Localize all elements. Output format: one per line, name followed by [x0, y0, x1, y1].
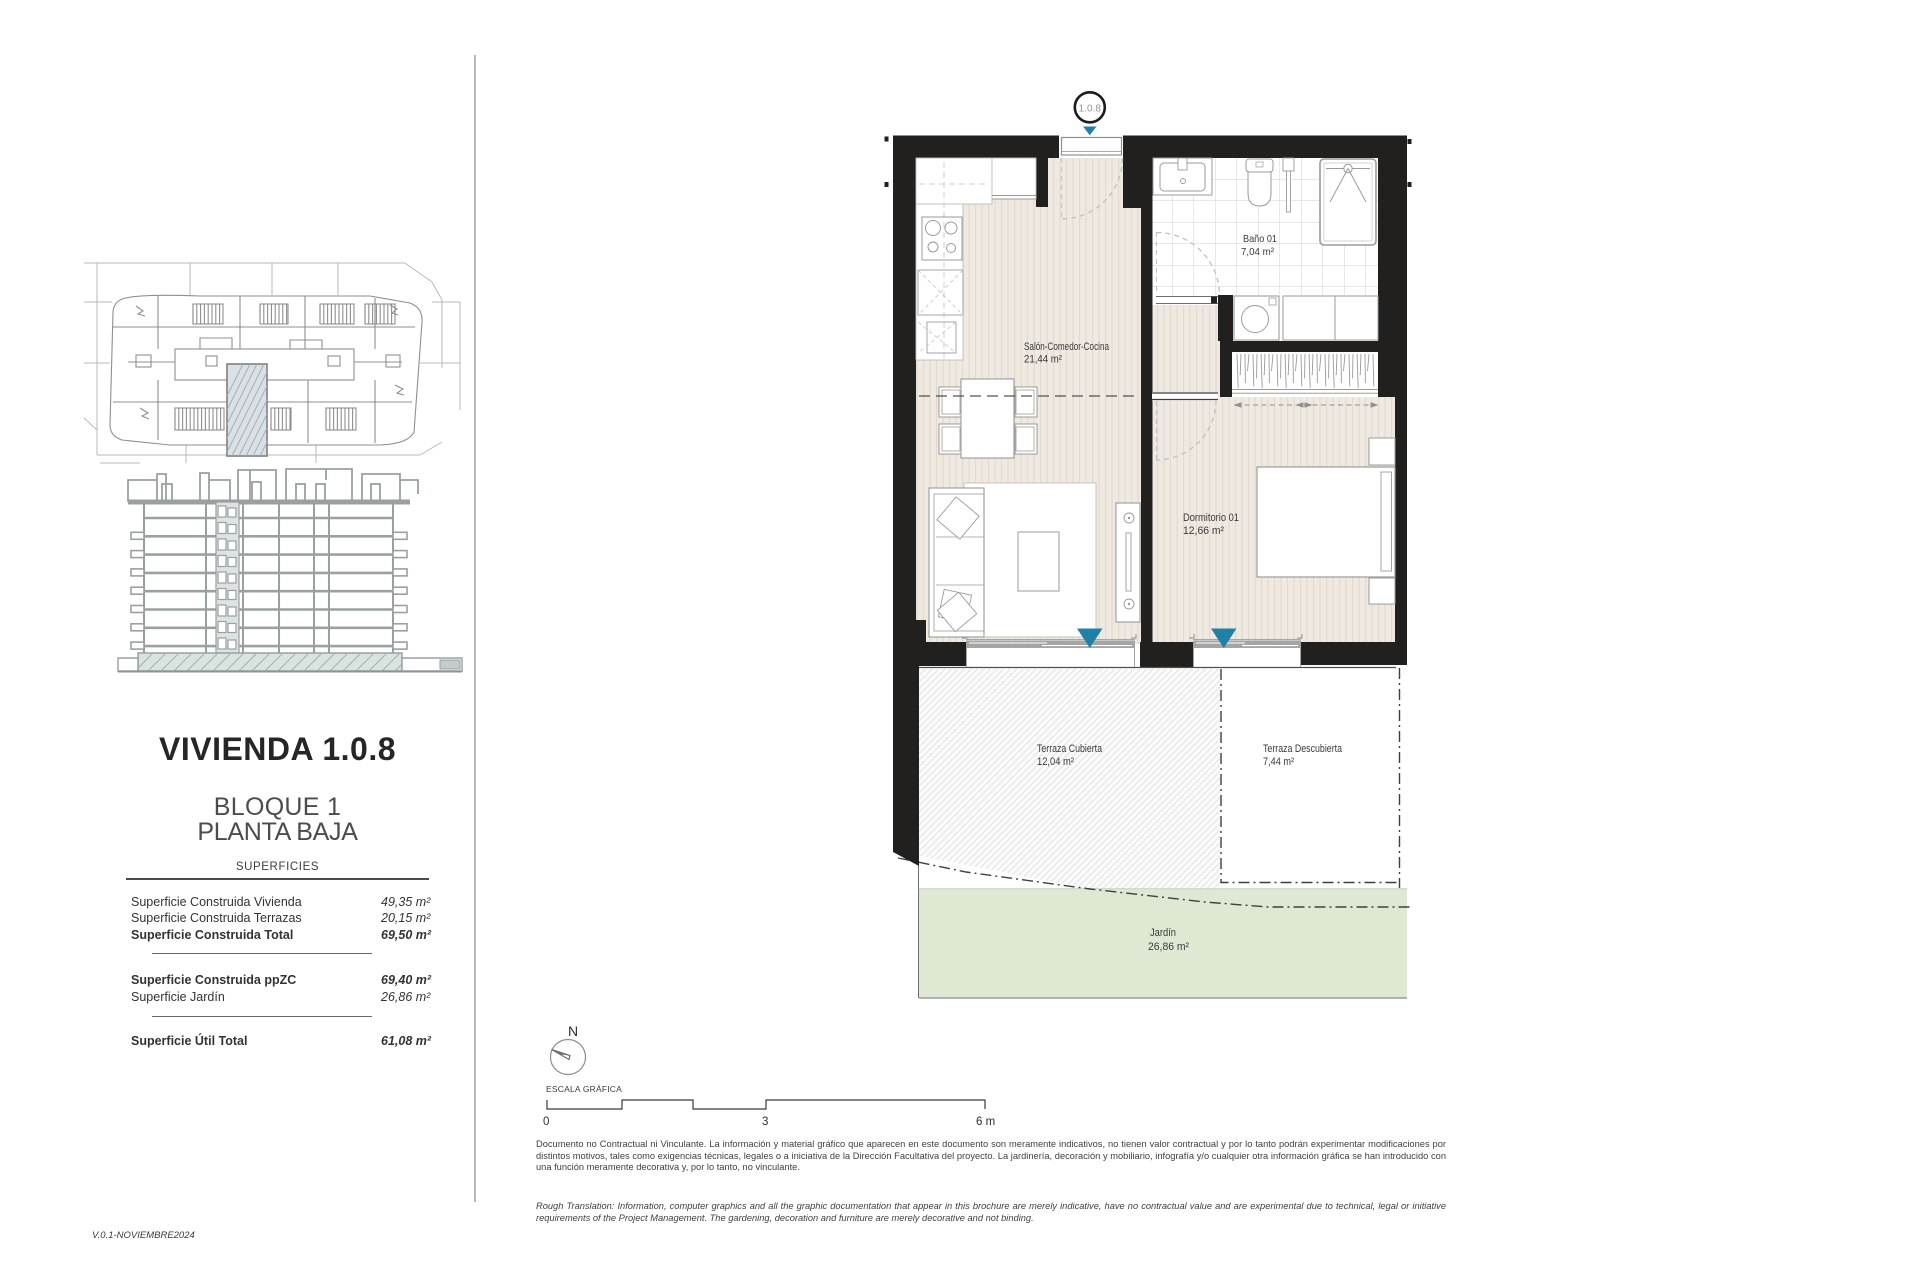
svg-text:N: N [568, 1023, 578, 1039]
svg-text:6 m: 6 m [976, 1116, 995, 1128]
svg-text:7,44 m²: 7,44 m² [1263, 756, 1294, 768]
svg-text:0: 0 [543, 1116, 549, 1128]
svg-text:Salón-Comedor-Cocina: Salón-Comedor-Cocina [1024, 341, 1110, 353]
svg-text:Dormitorio 01: Dormitorio 01 [1183, 512, 1239, 524]
svg-text:Jardín: Jardín [1150, 927, 1176, 939]
svg-text:12,66 m²: 12,66 m² [1183, 525, 1224, 537]
svg-text:3: 3 [762, 1116, 768, 1128]
svg-text:7,04 m²: 7,04 m² [1241, 246, 1274, 258]
svg-text:Terraza Descubierta: Terraza Descubierta [1263, 743, 1343, 755]
svg-text:26,86 m²: 26,86 m² [1148, 941, 1189, 953]
svg-text:21,44 m²: 21,44 m² [1024, 354, 1062, 366]
svg-text:12,04 m²: 12,04 m² [1037, 756, 1074, 768]
svg-text:Baño 01: Baño 01 [1243, 233, 1277, 245]
svg-text:1.0.8: 1.0.8 [1079, 104, 1102, 115]
svg-text:Terraza Cubierta: Terraza Cubierta [1037, 743, 1103, 755]
